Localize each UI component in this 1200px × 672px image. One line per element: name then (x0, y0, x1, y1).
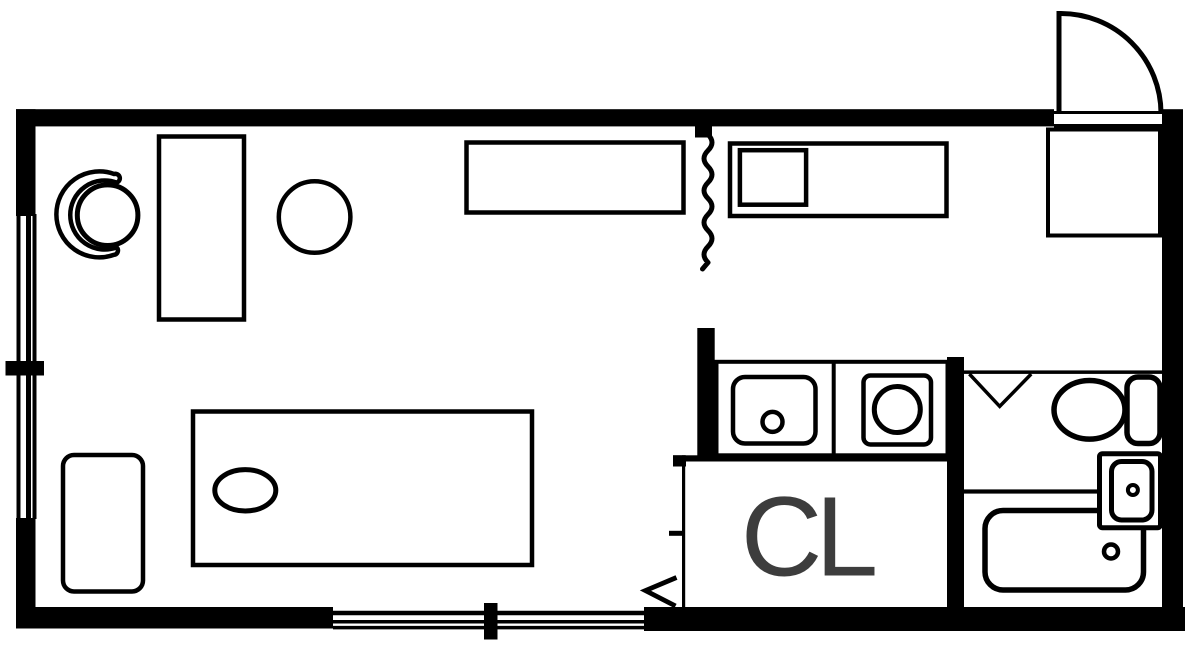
svg-text:CL: CL (741, 474, 876, 600)
